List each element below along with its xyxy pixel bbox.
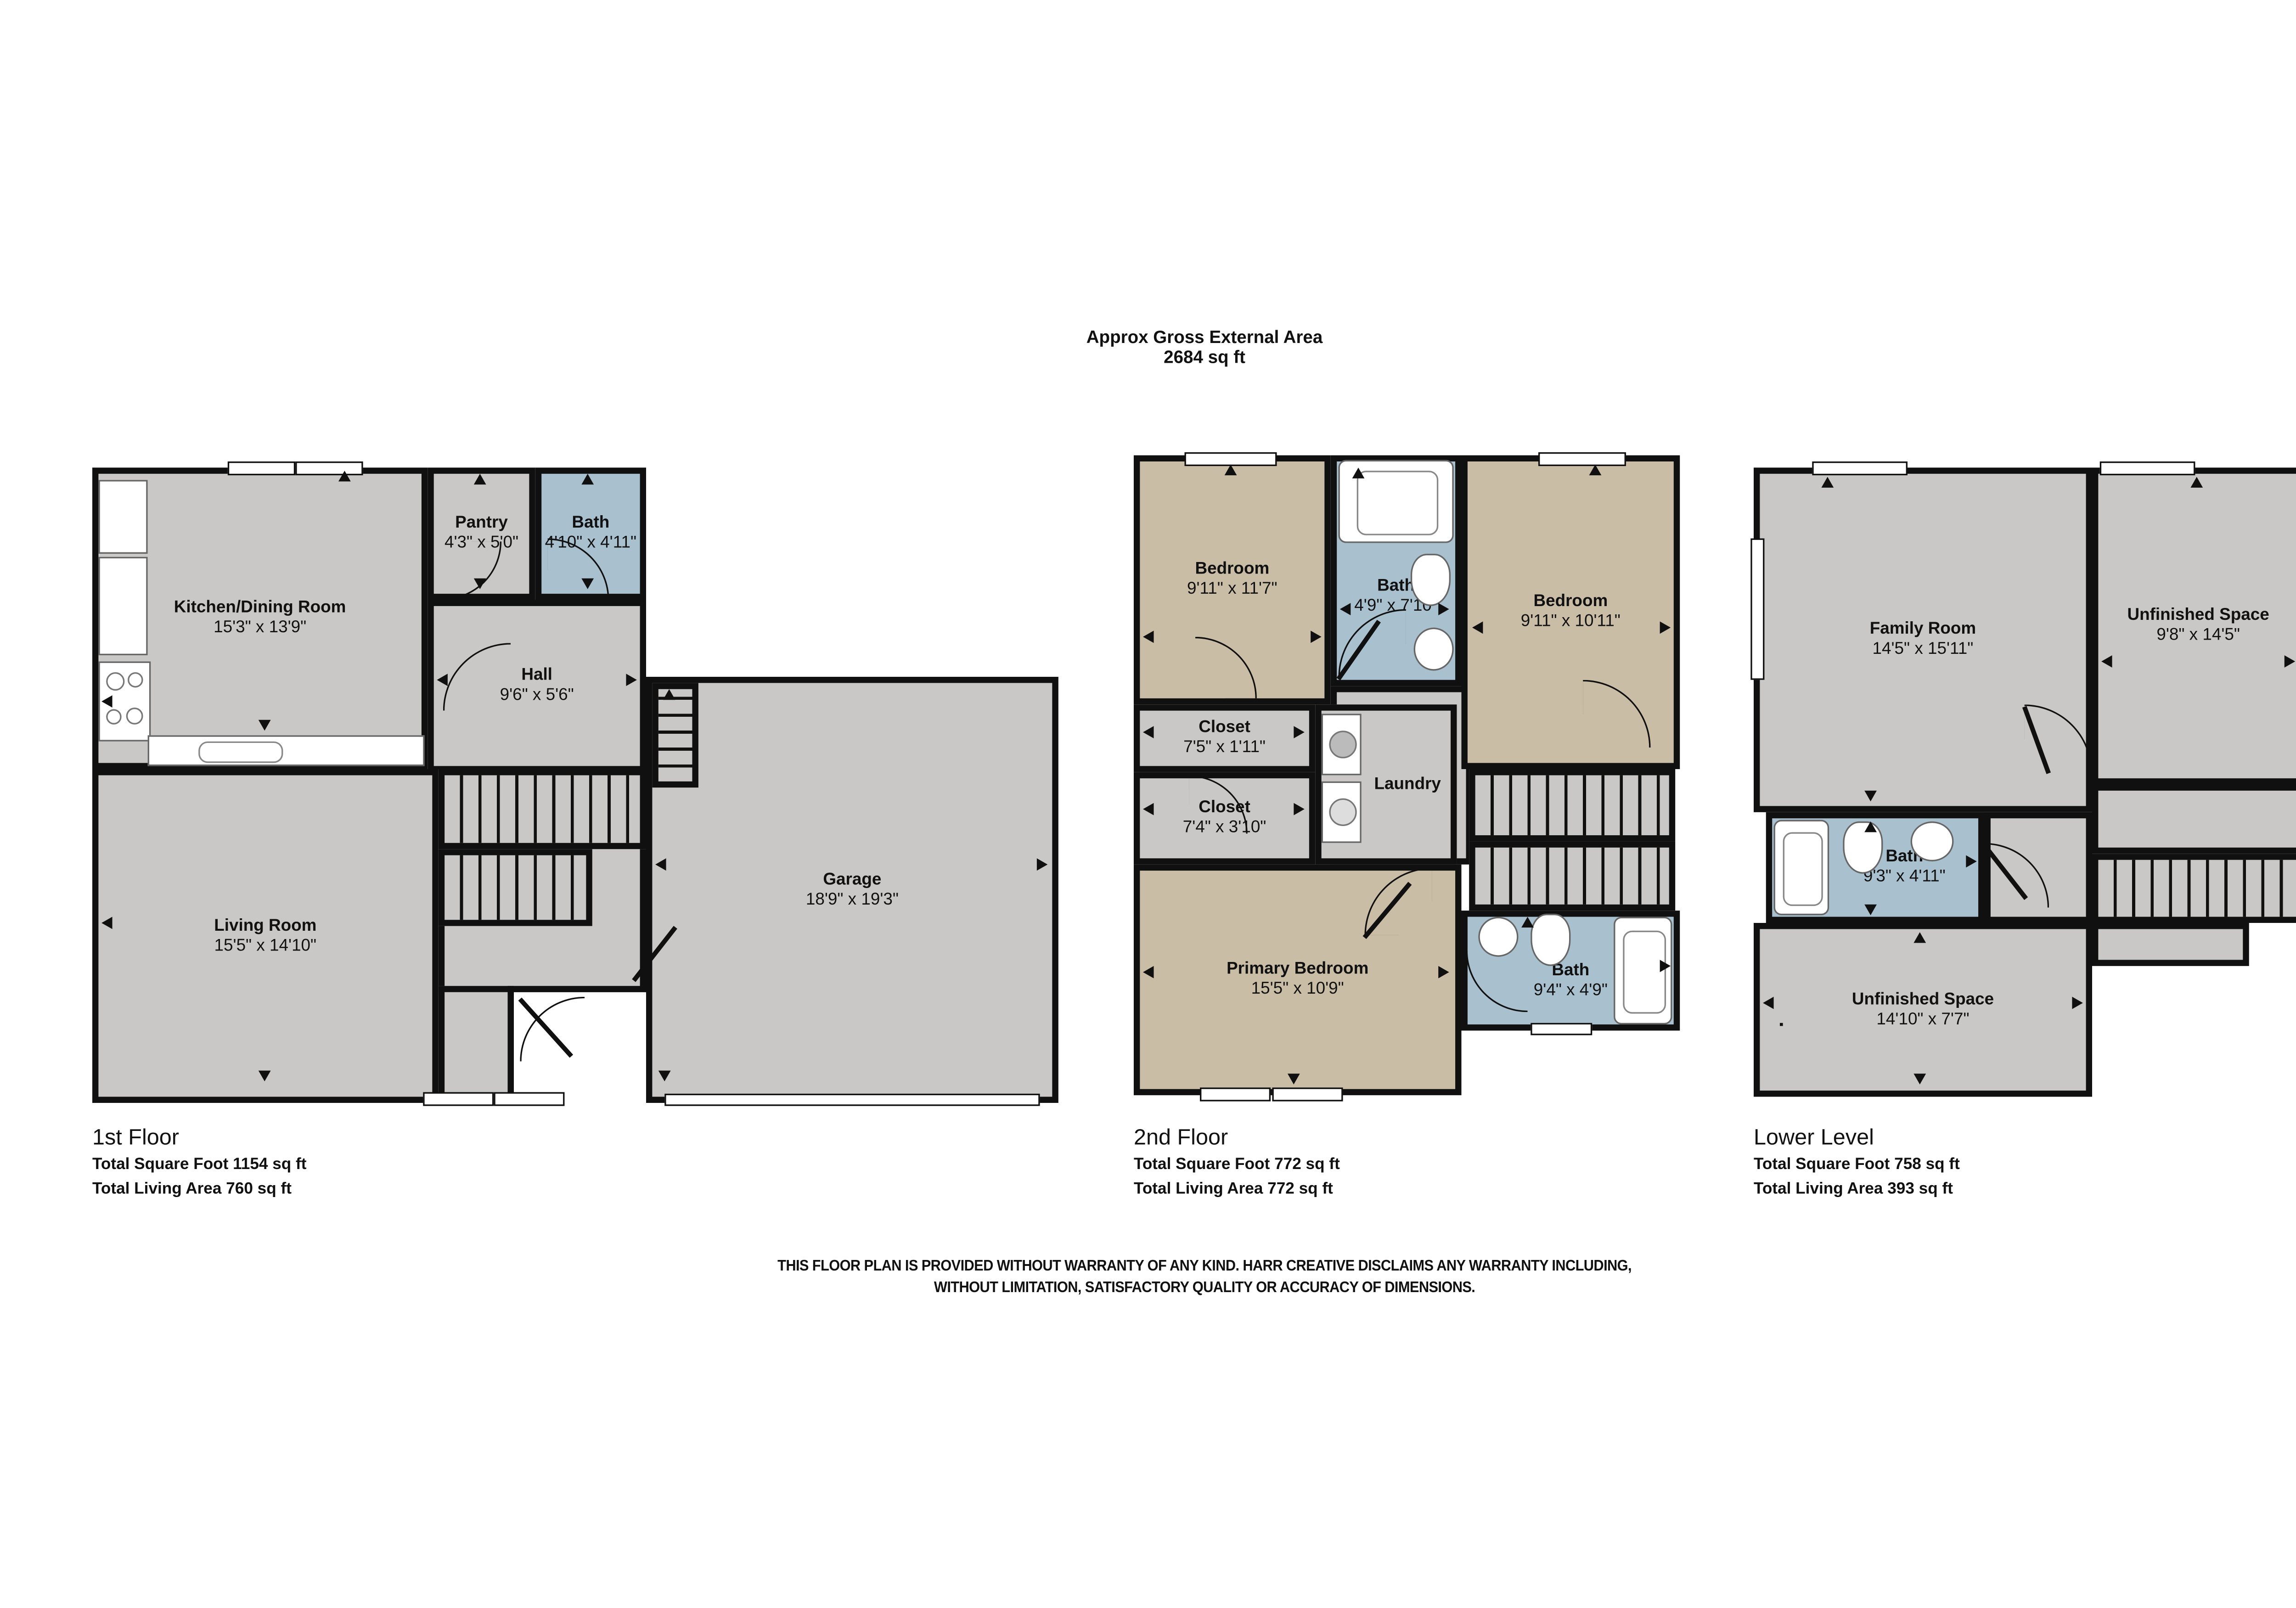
direction-arrow xyxy=(437,674,447,686)
room-dims: 9'4" x 4'9" xyxy=(1534,981,1608,1001)
direction-arrow xyxy=(1037,858,1047,871)
floor-living-area: Total Living Area 760 sq ft xyxy=(92,1177,306,1202)
room-label: Hall xyxy=(521,666,552,686)
toilet-icon xyxy=(1411,554,1451,606)
room-dims: 9'11" x 11'7" xyxy=(1187,580,1277,600)
below-stairs-area xyxy=(2092,923,2249,966)
room-label: Pantry xyxy=(455,514,508,534)
direction-arrow xyxy=(1438,966,1449,978)
stairs xyxy=(2092,854,2296,923)
page-title: Approx Gross External Area 2684 sq ft xyxy=(897,329,1512,369)
bathtub-icon xyxy=(1774,820,1829,916)
room-label: Closet xyxy=(1199,718,1250,738)
direction-arrow xyxy=(1438,603,1449,615)
direction-arrow xyxy=(1311,631,1321,643)
room-label: Bath xyxy=(572,514,609,534)
first-floor-footer: 1st Floor Total Square Foot 1154 sq ft T… xyxy=(92,1124,306,1202)
room-label: Primary Bedroom xyxy=(1227,960,1368,980)
dryer-icon xyxy=(1322,782,1362,843)
direction-arrow xyxy=(1660,621,1671,634)
direction-arrow xyxy=(259,1071,271,1081)
floor-living-area: Total Living Area 393 sq ft xyxy=(1754,1177,1960,1202)
room-living: Living Room 15'5" x 14'10" xyxy=(92,769,439,1103)
lower-hall xyxy=(2092,785,2296,854)
direction-arrow xyxy=(1589,465,1602,475)
direction-arrow xyxy=(655,858,666,871)
window xyxy=(1531,1023,1592,1035)
room-closet-top: Closet 7'5" x 1'11" xyxy=(1134,704,1315,772)
room-unfinished-bottom: Unfinished Space 14'10" x 7'7" xyxy=(1754,923,2092,1097)
page-title-line2: 2684 sq ft xyxy=(897,349,1512,369)
toilet-icon xyxy=(1531,914,1570,966)
room-dims: 9'11" x 10'11" xyxy=(1521,612,1621,632)
room-label: Bedroom xyxy=(1195,560,1269,580)
stairs xyxy=(439,769,646,849)
second-floor-plan: Bedroom 9'11" x 11'7" Bath 4'9" x 7'10" … xyxy=(1134,455,1680,1103)
wall xyxy=(508,986,514,1103)
window xyxy=(295,461,363,475)
sink-icon xyxy=(1414,628,1454,671)
room-label: Bedroom xyxy=(1533,592,1608,613)
garage-door-opening xyxy=(664,1094,1040,1106)
direction-arrow xyxy=(581,474,594,484)
direction-arrow xyxy=(1294,803,1304,815)
disclaimer-line1: THIS FLOOR PLAN IS PROVIDED WITHOUT WARR… xyxy=(709,1257,1699,1278)
direction-arrow xyxy=(2072,997,2082,1009)
first-floor-plan: Kitchen/Dining Room 15'3" x 13'9" Pantry… xyxy=(92,455,1058,1109)
room-bedroom-right: Bedroom 9'11" x 10'11" xyxy=(1462,455,1680,769)
floor-total-sqft: Total Square Foot 758 sq ft xyxy=(1754,1152,1960,1177)
floor-name: Lower Level xyxy=(1754,1124,1960,1152)
direction-arrow xyxy=(1864,905,1877,915)
room-garage: Garage 18'9" x 19'3" xyxy=(646,677,1058,1103)
window xyxy=(494,1092,564,1106)
disclaimer-line2: WITHOUT LIMITATION, SATISFACTORY QUALITY… xyxy=(709,1278,1699,1300)
stairs xyxy=(439,849,592,926)
direction-arrow xyxy=(1864,791,1877,801)
direction-arrow xyxy=(1294,726,1304,738)
window xyxy=(2100,461,2195,475)
direction-arrow xyxy=(1472,621,1483,634)
stairs xyxy=(1469,769,1675,841)
direction-arrow xyxy=(1913,1074,1926,1084)
room-label: Family Room xyxy=(1870,620,1976,640)
direction-arrow xyxy=(2101,655,2112,668)
direction-arrow xyxy=(474,474,486,484)
room-label: Laundry xyxy=(1374,775,1441,795)
direction-arrow xyxy=(2190,477,2203,488)
wall xyxy=(508,986,649,992)
room-dims: 15'3" x 13'9" xyxy=(214,618,306,639)
room-dims: 7'5" x 1'11" xyxy=(1183,738,1266,759)
toilet-icon xyxy=(1843,821,1883,874)
direction-arrow xyxy=(1288,1074,1300,1084)
lower-level-footer: Lower Level Total Square Foot 758 sq ft … xyxy=(1754,1124,1960,1202)
window xyxy=(1538,452,1626,466)
window xyxy=(423,1092,494,1106)
direction-arrow xyxy=(1966,855,1976,868)
direction-arrow xyxy=(2285,655,2295,668)
direction-arrow xyxy=(1913,932,1926,943)
room-label: Unfinished Space xyxy=(1852,990,1994,1010)
hall-strip xyxy=(439,986,514,1103)
direction-arrow xyxy=(1340,603,1351,615)
room-dims: 9'3" x 4'11" xyxy=(1863,867,1946,888)
sink-icon xyxy=(1911,821,1954,861)
room-dims: 9'6" x 5'6" xyxy=(500,686,574,706)
room-label: Living Room xyxy=(214,916,316,936)
direction-arrow xyxy=(663,689,675,700)
floor-total-sqft: Total Square Foot 772 sq ft xyxy=(1134,1152,1340,1177)
direction-arrow xyxy=(474,579,486,589)
room-dims: 14'5" x 15'11" xyxy=(1873,640,1974,660)
kitchen-counter xyxy=(98,557,147,655)
direction-arrow xyxy=(1660,960,1671,972)
stairs xyxy=(1469,841,1675,911)
room-dims: 14'10" x 7'7" xyxy=(1876,1010,1969,1030)
window xyxy=(1812,461,1908,475)
room-unfinished-top: Unfinished Space 9'8" x 14'5" xyxy=(2092,467,2296,784)
direction-arrow xyxy=(1143,631,1154,643)
room-label: Bath xyxy=(1377,577,1415,597)
window xyxy=(1200,1087,1271,1101)
direction-arrow xyxy=(581,579,594,589)
direction-arrow xyxy=(1143,803,1154,815)
floor-living-area: Total Living Area 772 sq ft xyxy=(1134,1177,1340,1202)
direction-arrow xyxy=(101,917,112,929)
window xyxy=(1185,452,1277,466)
direction-arrow xyxy=(101,695,112,708)
direction-arrow xyxy=(1143,726,1154,738)
room-label: Kitchen/Dining Room xyxy=(174,598,346,618)
second-floor-footer: 2nd Floor Total Square Foot 772 sq ft To… xyxy=(1134,1124,1340,1202)
window xyxy=(1750,539,1764,680)
window xyxy=(1780,1023,1783,1026)
fridge-icon xyxy=(98,480,147,554)
direction-arrow xyxy=(1143,966,1154,978)
floor-name: 1st Floor xyxy=(92,1124,306,1152)
direction-arrow xyxy=(1352,467,1365,478)
direction-arrow xyxy=(259,720,271,731)
kitchen-counter xyxy=(148,735,425,766)
room-dims: 15'5" x 14'10" xyxy=(214,936,317,956)
floor-plan-sheet: Approx Gross External Area 2684 sq ft Ki… xyxy=(0,0,2296,1608)
disclaimer: THIS FLOOR PLAN IS PROVIDED WITHOUT WARR… xyxy=(709,1257,1699,1300)
room-label: Unfinished Space xyxy=(2127,606,2269,626)
direction-arrow xyxy=(338,471,351,481)
window xyxy=(1272,1087,1343,1101)
direction-arrow xyxy=(1225,465,1237,475)
room-dims: 15'5" x 10'9" xyxy=(1251,980,1344,1000)
window xyxy=(228,461,295,475)
direction-arrow xyxy=(1521,917,1534,928)
direction-arrow xyxy=(626,674,636,686)
room-label: Garage xyxy=(823,870,881,890)
room-dims: 9'8" x 14'5" xyxy=(2156,626,2240,646)
room-dims: 18'9" x 19'3" xyxy=(806,890,899,910)
kitchen-sink-icon xyxy=(198,741,284,762)
washer-icon xyxy=(1322,714,1362,775)
floor-name: 2nd Floor xyxy=(1134,1124,1340,1152)
lower-level-plan: Family Room 14'5" x 15'11" Unfinished Sp… xyxy=(1754,461,2296,1103)
direction-arrow xyxy=(658,1071,671,1081)
direction-arrow xyxy=(1821,477,1834,488)
page-title-line1: Approx Gross External Area xyxy=(897,329,1512,349)
floor-total-sqft: Total Square Foot 1154 sq ft xyxy=(92,1152,306,1177)
direction-arrow xyxy=(1864,821,1877,832)
direction-arrow xyxy=(1763,997,1773,1009)
